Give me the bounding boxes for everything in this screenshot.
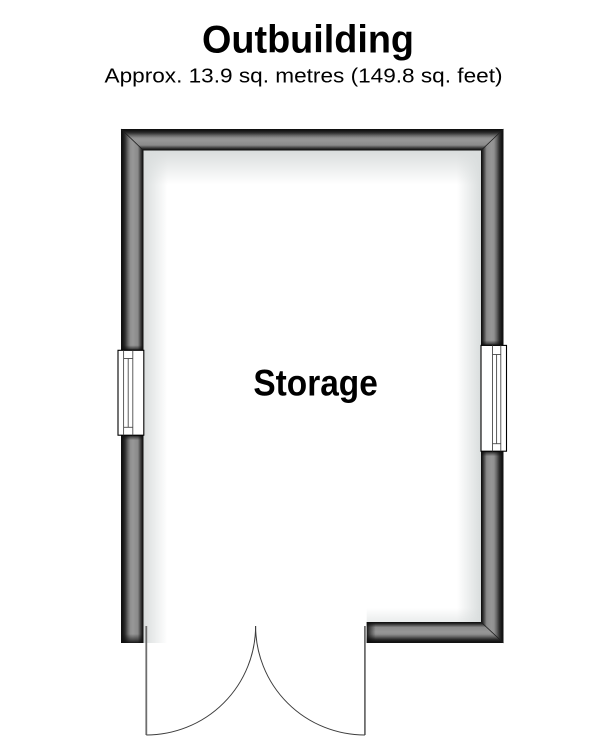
svg-text:Outbuilding: Outbuilding: [202, 19, 414, 62]
svg-text:Approx. 13.9 sq. metres (149.8: Approx. 13.9 sq. metres (149.8 sq. feet): [105, 66, 503, 88]
svg-text:Storage: Storage: [253, 361, 377, 403]
